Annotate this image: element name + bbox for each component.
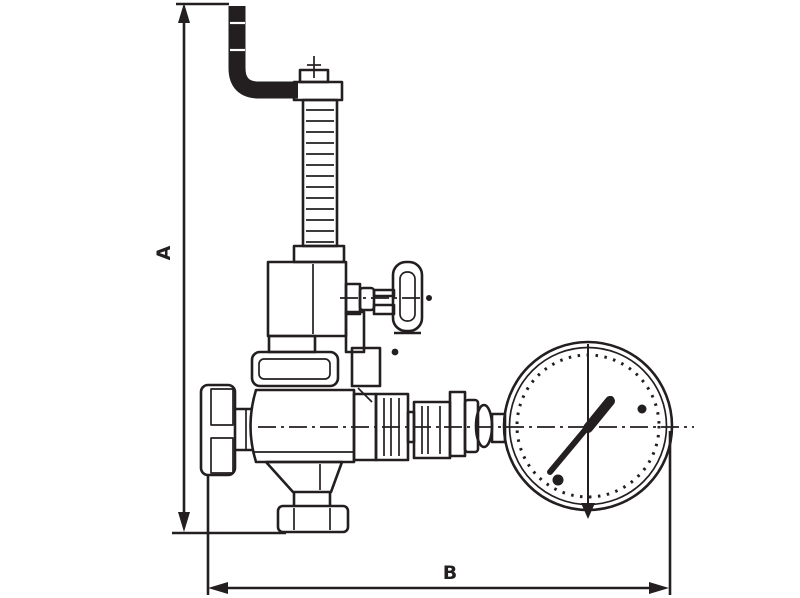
bottom-outlet — [266, 462, 348, 532]
centerline-end-dot — [426, 295, 432, 301]
downpipe-block — [352, 348, 380, 386]
needle-tail-dot — [553, 475, 564, 486]
flange-outer — [252, 352, 338, 386]
arrowhead-down-icon — [178, 512, 190, 532]
handwheel-panel-top — [211, 389, 233, 425]
union-nut-2 — [414, 402, 450, 458]
valve-dimension-drawing: A B — [0, 0, 800, 598]
upper-flange — [252, 352, 338, 386]
crank-pipe-body — [237, 6, 298, 90]
adjusting-screw — [294, 56, 342, 100]
spring-housing — [294, 100, 344, 262]
arrowhead-right-icon — [649, 582, 669, 594]
dial-marker-dot — [638, 405, 647, 414]
body-dot — [392, 349, 399, 356]
outlet-cone — [266, 462, 342, 492]
crank-pipe — [230, 6, 298, 90]
arrowhead-up-icon — [178, 3, 190, 23]
flange-inner — [259, 359, 330, 379]
handwheel-panel-bottom — [211, 438, 233, 473]
stem-rail-top — [374, 290, 394, 296]
t-handle-inner — [400, 272, 415, 321]
technical-drawing-canvas: A B — [0, 0, 800, 598]
gauge-adapter-nut — [450, 392, 465, 456]
bonnet-neck — [269, 336, 315, 352]
handwheel — [201, 385, 252, 475]
dimension-label-b: B — [443, 562, 457, 584]
handwheel-outer — [201, 385, 235, 475]
bonnet — [268, 262, 346, 352]
locknut-collar — [294, 246, 344, 262]
downpipe — [346, 312, 364, 352]
packing-nut — [360, 288, 374, 310]
spring-tube — [303, 100, 337, 246]
thread-hatch-lines — [306, 110, 334, 242]
gauge-needle-tip — [588, 401, 610, 428]
union-fittings — [354, 392, 505, 460]
adjusting-nut — [294, 82, 342, 100]
t-handle-valve — [346, 262, 422, 386]
bottom-flange — [278, 506, 348, 532]
arrowhead-left-icon — [208, 582, 228, 594]
port-flange — [346, 284, 360, 314]
stem-rail-bottom — [374, 305, 394, 314]
pressure-gauge — [504, 342, 672, 519]
dimension-label-a: A — [153, 245, 175, 260]
bonnet-body — [268, 262, 346, 336]
